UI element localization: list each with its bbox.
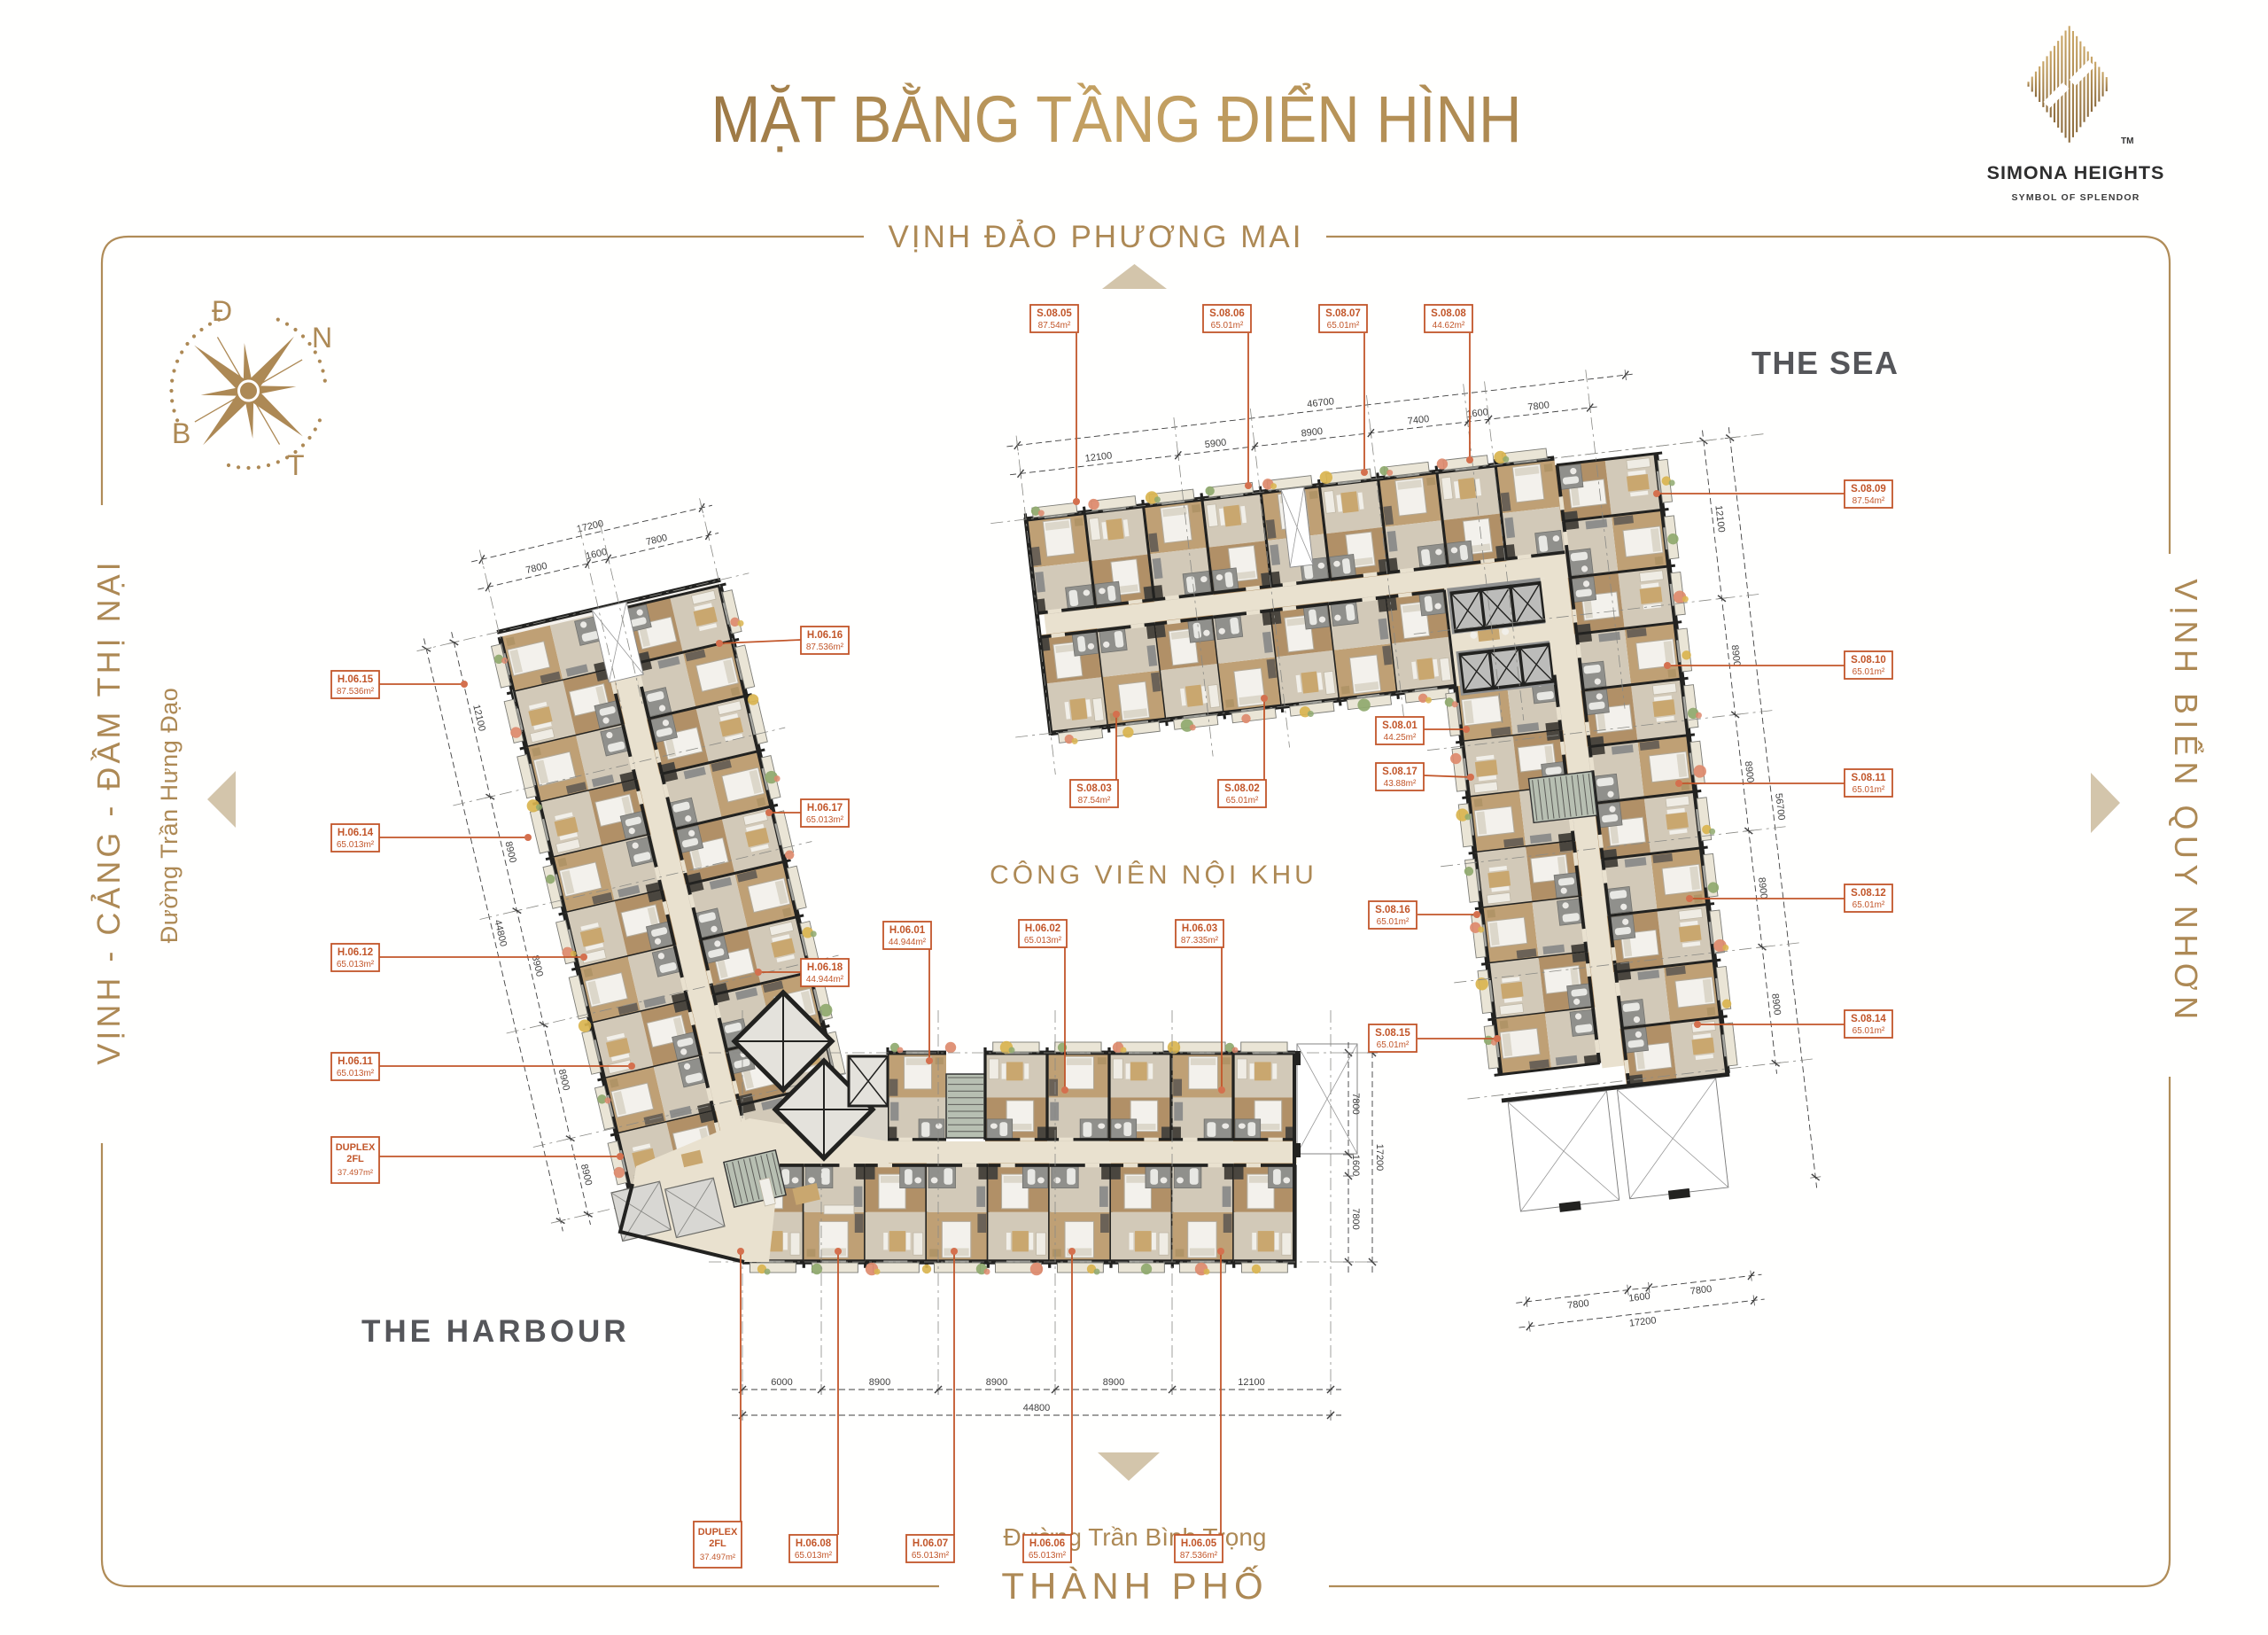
- svg-text:8900: 8900: [869, 1377, 890, 1388]
- svg-text:87.54m²: 87.54m²: [1078, 796, 1111, 806]
- svg-text:65.013m²: 65.013m²: [806, 815, 844, 825]
- svg-text:12100: 12100: [1238, 1377, 1265, 1388]
- svg-text:H.06.02: H.06.02: [1025, 923, 1060, 934]
- svg-text:THÀNH PHỐ: THÀNH PHỐ: [1001, 1564, 1268, 1607]
- svg-text:65.01m²: 65.01m²: [1852, 1026, 1885, 1036]
- svg-text:H.06.06: H.06.06: [1029, 1538, 1065, 1549]
- svg-text:CÔNG VIÊN NỘI KHU: CÔNG VIÊN NỘI KHU: [990, 860, 1317, 890]
- svg-text:44800: 44800: [1023, 1403, 1051, 1413]
- svg-text:DUPLEX: DUPLEX: [336, 1142, 376, 1153]
- svg-text:65.01m²: 65.01m²: [1226, 796, 1259, 806]
- svg-text:65.013m²: 65.013m²: [795, 1551, 833, 1561]
- svg-text:S.08.06: S.08.06: [1209, 308, 1245, 319]
- svg-text:65.01m²: 65.01m²: [1377, 917, 1410, 927]
- svg-text:MẶT BẰNG TẦNG ĐIỂN HÌNH: MẶT BẰNG TẦNG ĐIỂN HÌNH: [711, 82, 1522, 156]
- svg-text:H.06.05: H.06.05: [1181, 1538, 1217, 1549]
- svg-text:VỊNH - CẢNG - ĐẦM THỊ NẠI: VỊNH - CẢNG - ĐẦM THỊ NẠI: [90, 558, 127, 1064]
- svg-text:SYMBOL OF SPLENDOR: SYMBOL OF SPLENDOR: [2011, 192, 2140, 203]
- svg-text:H.06.15: H.06.15: [338, 674, 374, 685]
- svg-text:S.08.03: S.08.03: [1076, 783, 1112, 794]
- svg-text:T: T: [287, 449, 305, 481]
- svg-text:1600: 1600: [1350, 1155, 1361, 1176]
- svg-text:H.06.07: H.06.07: [913, 1538, 948, 1549]
- svg-text:SIMONA HEIGHTS: SIMONA HEIGHTS: [1987, 162, 2165, 183]
- svg-text:44.944m²: 44.944m²: [889, 938, 927, 947]
- svg-text:H.06.14: H.06.14: [338, 828, 374, 838]
- svg-text:H.06.16: H.06.16: [807, 630, 843, 641]
- svg-text:65.01m²: 65.01m²: [1327, 321, 1360, 331]
- svg-text:8900: 8900: [986, 1377, 1007, 1388]
- svg-text:S.08.15: S.08.15: [1375, 1028, 1410, 1039]
- svg-text:S.08.17: S.08.17: [1382, 767, 1417, 777]
- svg-text:65.01m²: 65.01m²: [1852, 667, 1885, 677]
- svg-text:B: B: [172, 417, 190, 449]
- svg-text:6000: 6000: [771, 1377, 792, 1388]
- svg-text:17200: 17200: [1374, 1144, 1385, 1172]
- svg-text:44.944m²: 44.944m²: [806, 975, 844, 985]
- svg-text:8900: 8900: [1103, 1377, 1124, 1388]
- svg-text:H.06.08: H.06.08: [796, 1538, 832, 1549]
- svg-text:65.01m²: 65.01m²: [1852, 785, 1885, 795]
- svg-text:TM: TM: [2121, 136, 2133, 146]
- svg-text:65.01m²: 65.01m²: [1852, 900, 1885, 910]
- svg-text:65.013m²: 65.013m²: [337, 840, 375, 850]
- svg-text:S.08.02: S.08.02: [1224, 783, 1260, 794]
- svg-text:37.497m²: 37.497m²: [700, 1553, 735, 1562]
- svg-text:S.08.08: S.08.08: [1431, 308, 1466, 319]
- svg-text:Đường Trần Hưng Đạo: Đường Trần Hưng Đạo: [156, 688, 183, 943]
- svg-text:N: N: [312, 322, 332, 354]
- svg-text:2FL: 2FL: [346, 1154, 364, 1164]
- svg-text:Đ: Đ: [212, 295, 232, 327]
- svg-text:H.06.01: H.06.01: [889, 925, 926, 936]
- svg-text:44.25m²: 44.25m²: [1384, 733, 1417, 743]
- svg-text:S.08.11: S.08.11: [1851, 773, 1886, 783]
- svg-text:37.497m²: 37.497m²: [338, 1168, 373, 1178]
- svg-text:H.06.12: H.06.12: [338, 947, 373, 958]
- svg-text:87.536m²: 87.536m²: [806, 642, 844, 652]
- svg-text:65.01m²: 65.01m²: [1211, 321, 1244, 331]
- svg-text:S.08.12: S.08.12: [1851, 888, 1886, 899]
- svg-text:S.08.07: S.08.07: [1325, 308, 1361, 319]
- svg-text:44.62m²: 44.62m²: [1433, 321, 1465, 331]
- svg-text:65.013m²: 65.013m²: [1024, 936, 1062, 946]
- svg-text:65.013m²: 65.013m²: [1029, 1551, 1067, 1561]
- svg-text:7800: 7800: [1350, 1093, 1361, 1114]
- svg-text:7800: 7800: [1350, 1208, 1361, 1229]
- svg-text:87.54m²: 87.54m²: [1852, 496, 1885, 506]
- svg-text:H.06.17: H.06.17: [807, 803, 843, 814]
- svg-text:65.01m²: 65.01m²: [1377, 1040, 1410, 1050]
- svg-text:S.08.01: S.08.01: [1382, 720, 1417, 731]
- svg-text:65.013m²: 65.013m²: [337, 1069, 375, 1078]
- svg-text:87.536m²: 87.536m²: [1180, 1551, 1218, 1561]
- svg-text:VỊNH ĐẢO PHƯƠNG MAI: VỊNH ĐẢO PHƯƠNG MAI: [889, 219, 1304, 254]
- svg-text:65.013m²: 65.013m²: [912, 1551, 950, 1561]
- svg-text:VỊNH BIỂN QUY NHƠN: VỊNH BIỂN QUY NHƠN: [2168, 579, 2205, 1024]
- svg-text:S.08.10: S.08.10: [1851, 655, 1886, 666]
- svg-text:2FL: 2FL: [709, 1538, 726, 1549]
- svg-text:S.08.16: S.08.16: [1375, 905, 1410, 915]
- svg-text:87.335m²: 87.335m²: [1181, 936, 1219, 946]
- svg-text:S.08.05: S.08.05: [1037, 308, 1072, 319]
- svg-text:87.536m²: 87.536m²: [337, 687, 375, 697]
- svg-text:THE HARBOUR: THE HARBOUR: [361, 1314, 630, 1349]
- svg-text:43.88m²: 43.88m²: [1384, 779, 1417, 789]
- svg-text:S.08.09: S.08.09: [1851, 484, 1886, 494]
- svg-text:H.06.03: H.06.03: [1182, 923, 1217, 934]
- svg-text:DUPLEX: DUPLEX: [698, 1527, 738, 1538]
- svg-text:H.06.18: H.06.18: [807, 962, 843, 973]
- svg-text:H.06.11: H.06.11: [338, 1056, 373, 1067]
- svg-text:65.013m²: 65.013m²: [337, 960, 375, 969]
- svg-text:THE SEA: THE SEA: [1751, 345, 1899, 381]
- svg-text:S.08.14: S.08.14: [1851, 1014, 1886, 1024]
- svg-text:87.54m²: 87.54m²: [1038, 321, 1071, 331]
